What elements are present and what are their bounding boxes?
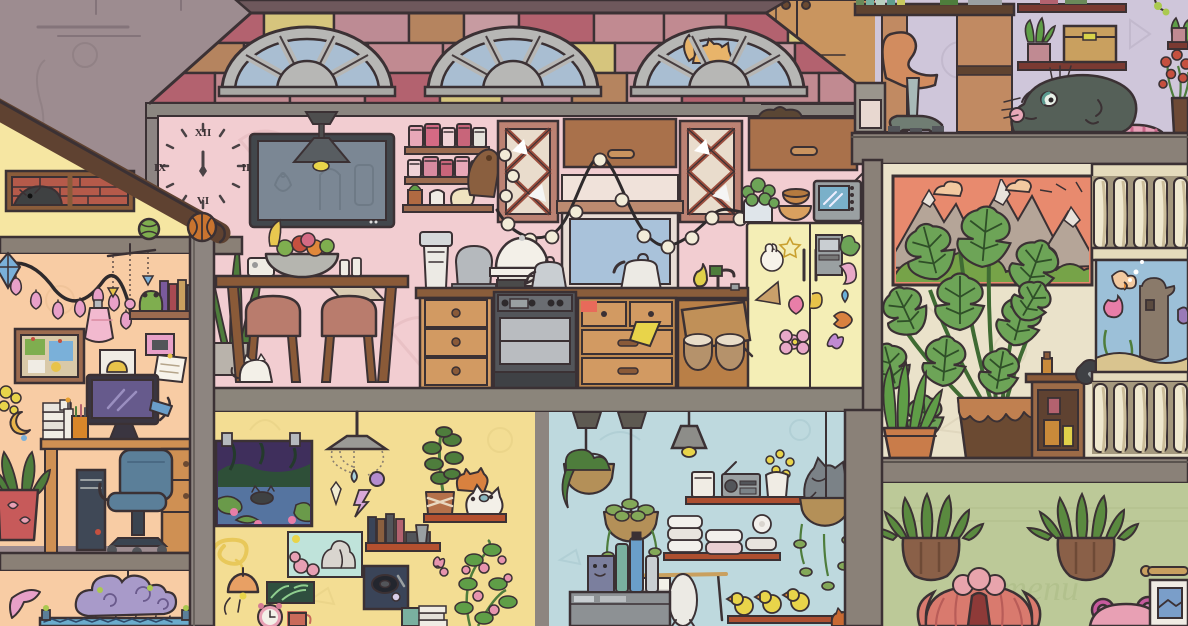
svg-text:IX: IX	[154, 162, 166, 174]
svg-text:XII: XII	[195, 127, 212, 139]
svg-text:VI: VI	[197, 195, 209, 207]
